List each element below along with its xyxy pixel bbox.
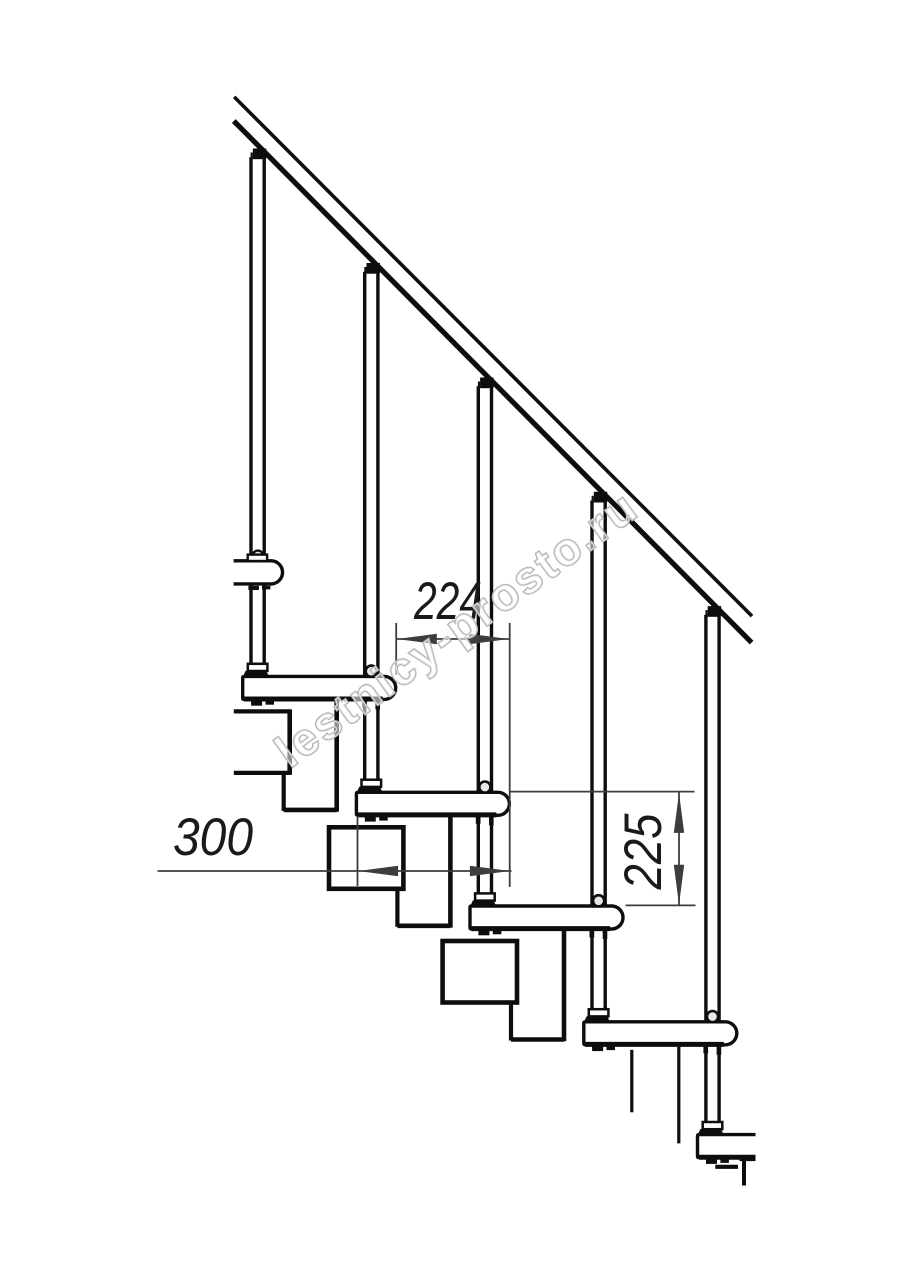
svg-text:225: 225 — [614, 813, 673, 890]
svg-text:300: 300 — [173, 808, 253, 867]
